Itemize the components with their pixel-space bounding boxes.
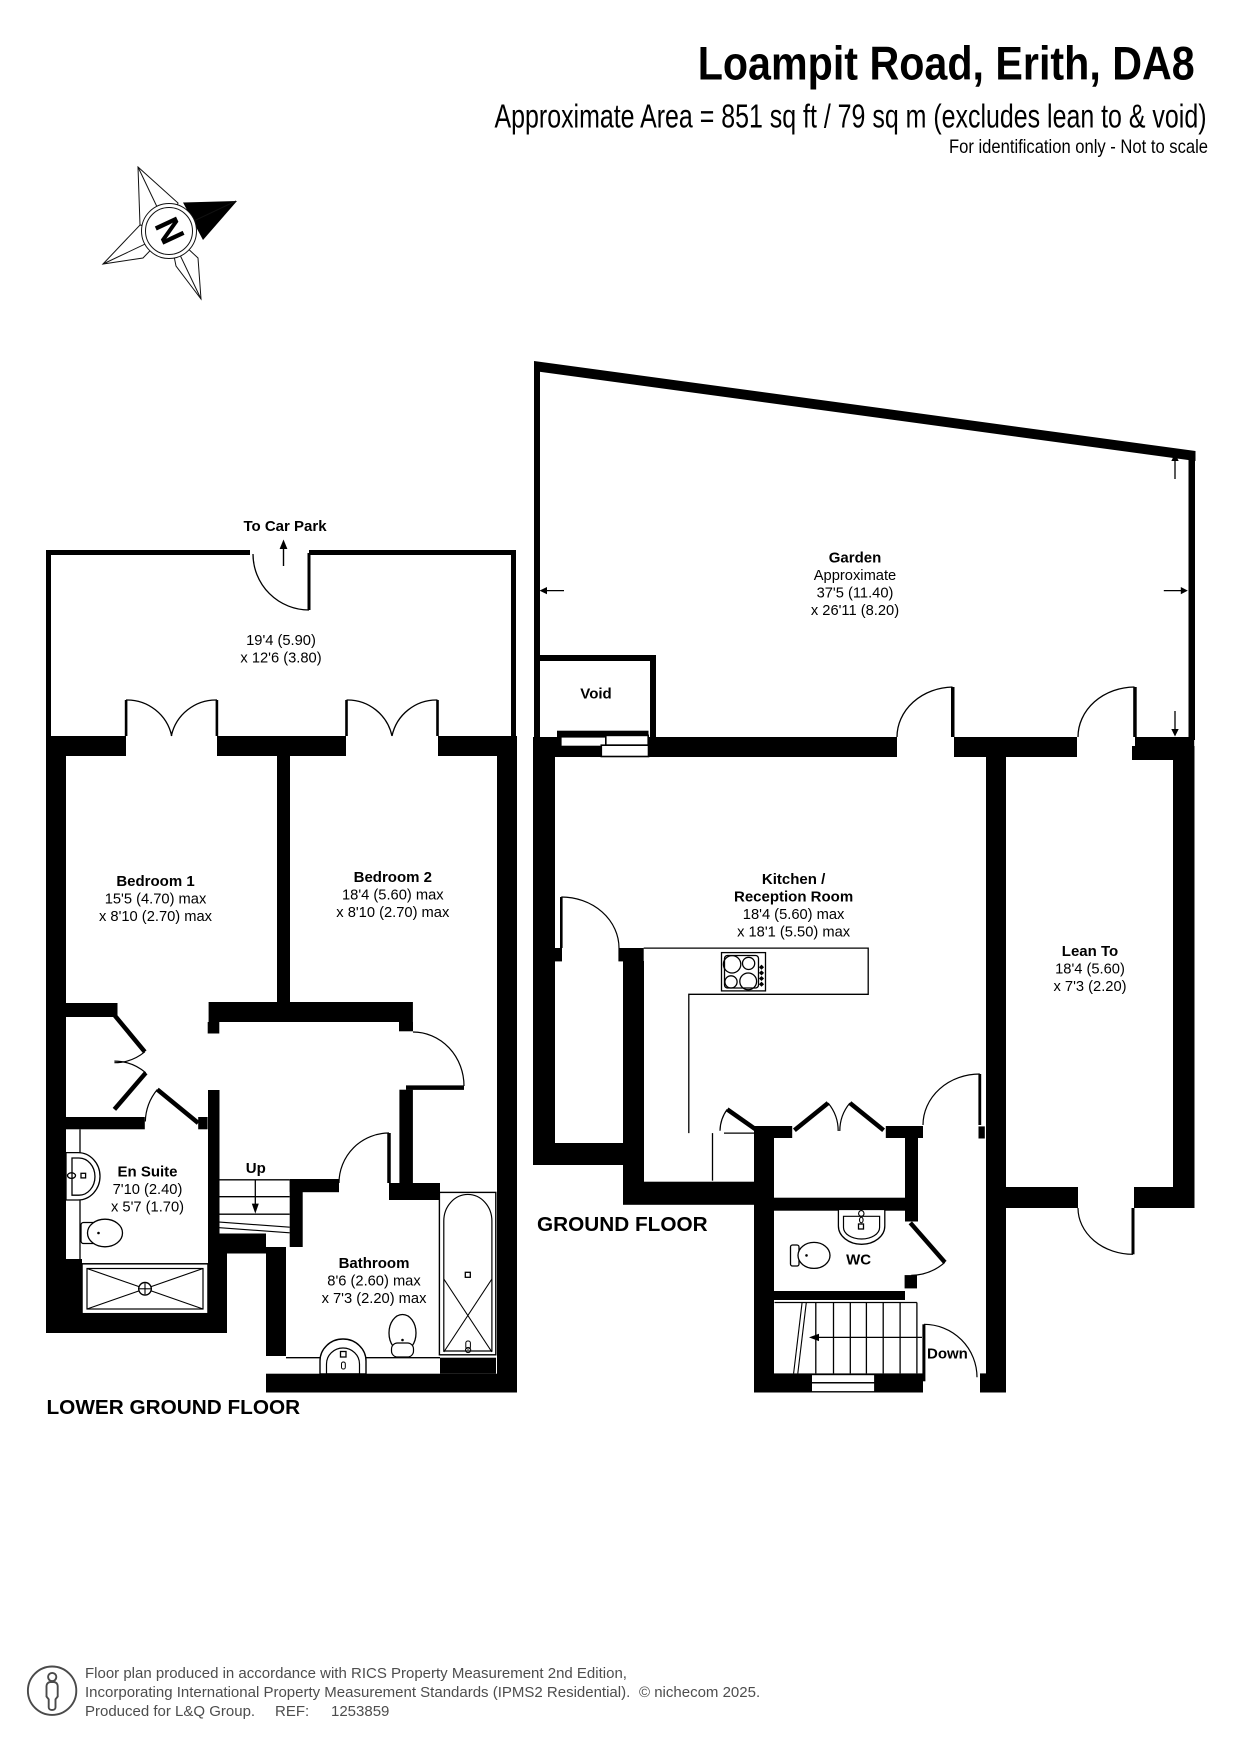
svg-text:15'5 (4.70) max: 15'5 (4.70) max <box>105 892 207 908</box>
svg-text:1253859: 1253859 <box>331 1703 389 1720</box>
svg-text:x 26'11 (8.20): x 26'11 (8.20) <box>811 603 899 619</box>
svg-text:To Car Park: To Car Park <box>243 518 327 535</box>
svg-text:Void: Void <box>580 686 611 703</box>
svg-text:x 18'1 (5.50) max: x 18'1 (5.50) max <box>737 925 851 941</box>
svg-text:37'5 (11.40): 37'5 (11.40) <box>817 586 894 602</box>
svg-text:x 5'7 (1.70): x 5'7 (1.70) <box>111 1200 184 1216</box>
svg-text:8'6 (2.60) max: 8'6 (2.60) max <box>327 1274 421 1290</box>
svg-text:x 7'3 (2.20) max: x 7'3 (2.20) max <box>322 1291 427 1307</box>
svg-text:Bathroom: Bathroom <box>339 1255 410 1272</box>
svg-text:Loampit Road, Erith, DA8: Loampit Road, Erith, DA8 <box>698 36 1195 89</box>
svg-text:Down: Down <box>927 1346 968 1363</box>
svg-text:Reception Room: Reception Room <box>734 889 853 906</box>
svg-text:Produced for L&Q Group.: Produced for L&Q Group. <box>85 1703 255 1720</box>
svg-text:Approximate: Approximate <box>814 568 896 584</box>
svg-text:GROUND FLOOR: GROUND FLOOR <box>537 1213 708 1236</box>
svg-text:WC: WC <box>846 1252 871 1269</box>
svg-text:Floor plan produced in accorda: Floor plan produced in accordance with R… <box>85 1665 627 1682</box>
svg-text:Bedroom 1: Bedroom 1 <box>116 873 194 890</box>
svg-text:Incorporating International Pr: Incorporating International Property Mea… <box>85 1684 630 1701</box>
svg-text:Kitchen /: Kitchen / <box>762 871 826 888</box>
svg-text:x 8'10 (2.70) max: x 8'10 (2.70) max <box>336 905 450 921</box>
svg-text:18'4 (5.60): 18'4 (5.60) <box>1055 962 1125 978</box>
svg-text:Approximate Area = 851 sq ft /: Approximate Area = 851 sq ft / 79 sq m (… <box>495 97 1207 134</box>
svg-text:En Suite: En Suite <box>117 1164 177 1181</box>
svg-text:x 12'6 (3.80): x 12'6 (3.80) <box>240 651 321 667</box>
svg-text:x 8'10 (2.70) max: x 8'10 (2.70) max <box>99 909 213 925</box>
svg-text:Up: Up <box>246 1160 266 1177</box>
svg-text:Lean To: Lean To <box>1062 943 1118 960</box>
svg-text:7'10 (2.40): 7'10 (2.40) <box>113 1182 183 1198</box>
svg-text:© nichecom 2025.: © nichecom 2025. <box>639 1684 760 1701</box>
svg-text:18'4 (5.60) max: 18'4 (5.60) max <box>342 888 444 904</box>
svg-text:Bedroom 2: Bedroom 2 <box>354 869 432 886</box>
svg-text:Garden: Garden <box>829 550 882 567</box>
svg-text:19'4 (5.90): 19'4 (5.90) <box>246 633 316 649</box>
svg-text:x 7'3 (2.20): x 7'3 (2.20) <box>1053 979 1126 995</box>
svg-text:REF:: REF: <box>275 1703 309 1720</box>
svg-text:LOWER GROUND FLOOR: LOWER GROUND FLOOR <box>47 1396 301 1419</box>
svg-text:18'4 (5.60) max: 18'4 (5.60) max <box>743 907 845 923</box>
svg-text:For identification only - Not: For identification only - Not to scale <box>949 137 1208 158</box>
